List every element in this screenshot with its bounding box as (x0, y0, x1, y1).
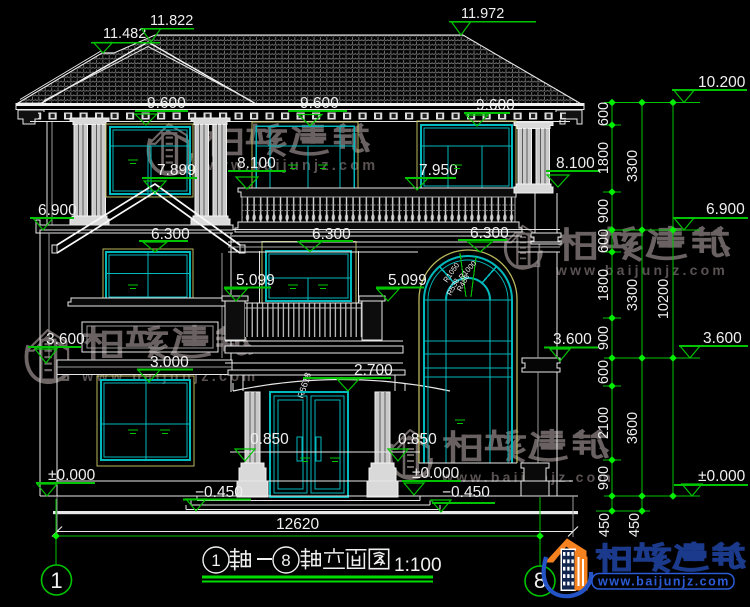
svg-text:11.972: 11.972 (461, 6, 504, 22)
svg-text:10.200: 10.200 (698, 74, 746, 91)
svg-text:0.850: 0.850 (398, 431, 437, 448)
svg-text:−0.450: −0.450 (442, 484, 490, 501)
svg-text:600: 600 (596, 360, 612, 384)
svg-text:www.baijunjz.com: www.baijunjz.com (201, 158, 378, 174)
svg-text:3300: 3300 (625, 279, 641, 311)
svg-text:0.850: 0.850 (250, 431, 289, 448)
svg-text:900: 900 (596, 326, 612, 350)
svg-text:9.600: 9.600 (147, 95, 186, 112)
svg-text:7.899: 7.899 (157, 162, 196, 179)
svg-text:1: 1 (211, 551, 220, 570)
svg-text:±0.000: ±0.000 (48, 467, 96, 484)
svg-text:2100: 2100 (596, 407, 612, 439)
svg-text:9.600: 9.600 (476, 97, 515, 114)
svg-text:1: 1 (50, 568, 62, 593)
svg-text:3.600: 3.600 (46, 331, 85, 348)
svg-text:900: 900 (596, 466, 612, 490)
svg-text:11.822: 11.822 (150, 13, 193, 29)
svg-text:12620: 12620 (276, 516, 319, 533)
svg-text:8: 8 (281, 551, 290, 570)
svg-text:±0.000: ±0.000 (412, 465, 460, 482)
svg-text:3300: 3300 (625, 150, 641, 182)
svg-text:600: 600 (596, 229, 612, 253)
svg-text:11.482: 11.482 (103, 26, 146, 42)
svg-text:9.600: 9.600 (300, 95, 339, 112)
svg-text:8.100: 8.100 (237, 155, 276, 172)
svg-text:10200: 10200 (656, 279, 672, 319)
svg-text:5.099: 5.099 (236, 272, 275, 289)
svg-text:1:100: 1:100 (394, 555, 442, 576)
svg-text:450: 450 (597, 513, 613, 537)
svg-text:3.000: 3.000 (150, 354, 189, 371)
svg-text:3600: 3600 (625, 412, 641, 444)
svg-text:600: 600 (596, 102, 612, 126)
svg-text:www.baijunjz.com: www.baijunjz.com (597, 575, 730, 589)
svg-text:6.900: 6.900 (706, 201, 745, 218)
svg-text:1800: 1800 (596, 142, 612, 174)
svg-text:8.100: 8.100 (556, 155, 595, 172)
svg-text:5.099: 5.099 (388, 272, 427, 289)
svg-text:3.600: 3.600 (703, 330, 742, 347)
svg-text:2.700: 2.700 (354, 362, 393, 379)
svg-text:3.600: 3.600 (553, 331, 592, 348)
svg-text:1800: 1800 (596, 269, 612, 301)
svg-text:900: 900 (596, 199, 612, 223)
svg-text:6.900: 6.900 (38, 202, 77, 219)
svg-text:±0.000: ±0.000 (698, 468, 746, 485)
svg-text:450: 450 (627, 513, 643, 537)
